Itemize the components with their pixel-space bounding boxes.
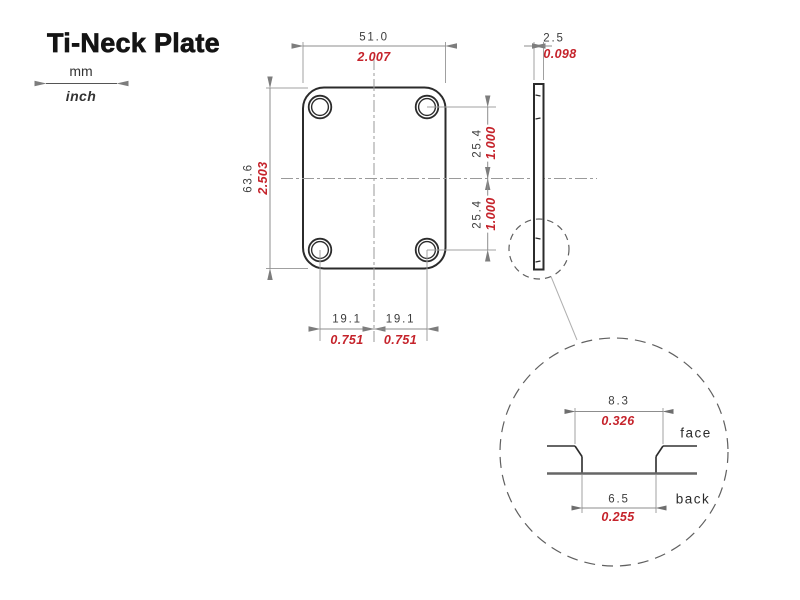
dim-height-mm: 63.6: [243, 163, 255, 193]
dim-thickness-inch: 0.098: [543, 48, 576, 61]
drawing-canvas: [0, 0, 800, 600]
dim-hole-spacing-upper-inch: 1.000: [485, 124, 498, 161]
dim-hole-offset-left-mm: 19.1: [332, 314, 362, 326]
legend-inch-label: inch: [66, 89, 96, 103]
legend-mm-label: mm: [69, 64, 92, 78]
dim-hole-offset-left-inch: 0.751: [330, 333, 363, 346]
dim-hole-offset-right-mm: 19.1: [386, 314, 416, 326]
dim-hole-offset-right-inch: 0.751: [384, 333, 417, 346]
dim-hole-spacing-lower-inch: 1.000: [485, 195, 498, 232]
detail-view-circle: [500, 338, 728, 566]
dim-countersink-face-mm: 8.3: [608, 396, 629, 408]
dim-hole-spacing-lower-mm: 25.4: [472, 199, 484, 229]
drawing-sheet: Ti-Neck Plate mm inch 51.0 2.007 63.6 2.…: [0, 0, 800, 600]
dim-width-mm: 51.0: [359, 32, 389, 44]
dim-countersink-face-inch: 0.326: [601, 415, 634, 428]
dim-width-inch: 2.007: [357, 51, 390, 64]
side-view-outline: [534, 84, 544, 270]
back-label: back: [676, 492, 711, 506]
dim-height-inch: 2.503: [256, 161, 269, 194]
dim-thickness-mm: 2.5: [543, 33, 564, 45]
face-label: face: [680, 426, 712, 440]
dim-hole-back-inch: 0.255: [601, 511, 634, 524]
detail-leader-line: [551, 277, 577, 341]
dim-hole-back-mm: 6.5: [608, 494, 629, 506]
dim-hole-spacing-upper-mm: 25.4: [472, 128, 484, 158]
page-title: Ti-Neck Plate: [47, 28, 220, 59]
